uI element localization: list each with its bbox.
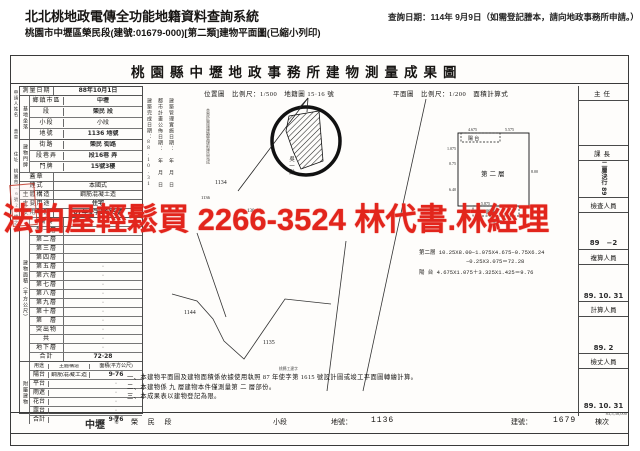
area-calc-line-2: −0.25X3.075＝72.28 [466,257,524,265]
boundary-line [363,99,426,391]
north-arrow-head [307,98,308,112]
attached-label: 露台 [30,408,49,414]
official-title: 計算人員 [579,302,628,317]
footer-section: 榮 民 段 [131,417,176,427]
floor-area-group: 建物面積（平方公尺） 騎樓· 第一層 第二層 第三層 第四層 第五層· 第六層·… [20,217,142,361]
floor-label: 第五層 [30,263,64,271]
system-title: 北北桃地政電傳全功能地籍資料查詢系統 [25,6,259,25]
floor-label: 突出物 [30,326,64,334]
document-subtitle: 桃園市中壢區榮民段(建號:01679-000)[第二類]建物平面圖(已縮小列印) [25,25,321,39]
note-line-2: 二、本建物係 九 層建物本件僅測量第 二 層部份。 [127,382,276,391]
footer-building-number: 1679 [553,416,576,425]
floor-label: 第三層 [30,245,64,253]
floor-label: 第四層 [30,254,64,262]
boundary-line [197,233,226,317]
official-title: 複算人員 [579,250,628,265]
dim-top-left: 4.675 [468,127,477,132]
floor-value: · [64,308,142,316]
row-value: 段16巷 弄 [64,152,142,160]
table-row: 段榮民 段 [30,106,142,117]
parcel-label-1144: 1144 [184,310,196,316]
row-label: 鄉鎮市區 [30,97,64,105]
dim-top-right: 5.575 [505,127,514,132]
row-label: 小段 [30,119,64,127]
official-title: 課長 [579,146,628,161]
attached-row: 露台· [30,406,142,415]
table-row: 段巷弄段16巷 弄 [30,150,142,161]
attached-row: 平台· [30,379,142,388]
survey-date-row: 測量日期 88年10月1日 [20,87,142,95]
table-row: 門牌15號3樓 [30,161,142,172]
area-calc-line-3: 陽 台 4.675X1.075＋3.325X1.425＝9.76 [419,268,533,276]
floor-label: 第六層 [30,272,64,280]
query-date: 查詢日期：114年 9月9日（如需登記謄本，請向地政事務所申請。） [388,11,639,23]
attached-label: 合計 [30,417,49,423]
official-note: 89. 10. 31 [579,369,628,411]
floor-row: 第七層· [30,280,142,289]
row-value: 15號3樓 [64,163,142,171]
floor-row: 第六層· [30,271,142,280]
building-info-table: 測量日期 88年10月1日 基地坐落 鄉鎮市區中壢 段榮民 段 小段小段 地號1… [19,86,143,414]
floor-label: 地下層 [30,344,64,352]
attached-group-label: 附屬建物 [20,362,30,424]
attached-row: 花台· [30,397,142,406]
attached-header-row: 用途 主體構造 面積(平方公尺) [30,362,142,370]
officials-column: 主任 課長 二層決行 89 檢查人員 89 −2 複算人員 89. 10. 31… [578,86,628,416]
floor-row: 第九層· [30,298,142,307]
row-label: 地號 [30,130,64,138]
footer-parcel-number: 1136 [371,416,394,425]
attached-structure: 鋼筋混凝土造 [49,372,90,378]
floor-value: · [64,281,142,289]
floor-label: 第九層 [30,299,64,307]
row-value: 榮民 街路 [64,141,142,149]
floor-row: 第 層· [30,316,142,325]
official-section-calculator: 計算人員 89. 2 [579,302,628,354]
footer-bottom-rule [11,433,628,434]
floor-value [64,239,142,241]
floor-total-row: 合計72·28 [30,352,142,361]
official-title: 主任 [579,86,628,101]
attached-area-header: 面積(平方公尺) [90,364,142,369]
attached-label: 平台 [30,381,49,387]
seal-label: 蓋章 [20,173,54,181]
survey-document: 桃園縣中壢地政事務所建物測量成果圖 申請人姓名 蓋章 住址 桃園市…6號20樓之… [10,55,629,446]
site-group-label: 基地坐落 [20,96,30,139]
row-value: 本國式 [54,182,142,190]
balcony-top-outline [461,133,500,142]
attached-row: 雨遮· [30,388,142,397]
footer-unit-label: 棟次 [595,417,609,427]
floor-value: · [64,335,142,343]
site-group: 基地坐落 鄉鎮市區中壢 段榮民 段 小段小段 地號1136 地號 [20,95,142,139]
table-row: 地號1136 地號 [30,128,142,139]
floor-row: 地下層· [30,343,142,352]
floor-value: · [64,317,142,325]
document-title: 桃園縣中壢地政事務所建物測量成果圖 [131,61,463,81]
area-calc-line-1: 第二層 10.25X8.00−1.075X4.675−0.75X6.24 [419,248,544,256]
official-note: 89. 2 [579,317,628,353]
official-section-head: 課長 二層決行 89 [579,146,628,198]
footer-town-label: 鄉市 [114,415,119,429]
attached-area: · [90,408,142,414]
attached-group: 附屬建物 用途 主體構造 面積(平方公尺) 陽台鋼筋混凝土造9·76 平台· 雨… [20,361,142,424]
boundary-line [172,294,331,359]
official-section-surveyor: 檢丈人員 89. 10. 31 [579,354,628,411]
survey-date-value: 88年10月1日 [54,87,142,95]
floor-value: · [64,326,142,334]
table-row: 鄉鎮市區中壢 [30,96,142,106]
floor-row: 第八層· [30,289,142,298]
dim-left-1: 1.075 [447,146,456,151]
row-label: 段 [30,108,64,116]
seal-row: 蓋章 [20,172,142,181]
table-row: 小段小段 [30,117,142,128]
official-note [579,101,628,145]
title-rule [11,83,628,84]
floor-label: 共 [30,335,64,343]
footer-parcel-label: 地號： [331,417,352,427]
attached-label: 雨遮 [30,390,49,396]
footer-town: 中壢 [85,416,105,431]
row-value: 1136 地號 [64,130,142,138]
official-section-checker: 複算人員 89. 10. 31 [579,250,628,302]
floor-row: 第三層 [30,244,142,253]
floor-value: · [64,299,142,307]
row-value: 中壢 [64,97,142,105]
floor-value: · [64,272,142,280]
official-section-chief: 主任 [579,86,628,146]
floor-row: 突出物· [30,325,142,334]
floor-label: 第二層 [30,236,64,244]
official-title: 檢丈人員 [579,354,628,369]
dim-left-2: 0.75 [449,161,456,166]
floor-total-value: 72·28 [64,353,142,361]
floor-label: 第 層 [30,317,64,325]
footer-subsection: 小段 [273,417,287,427]
floor-row: 第四層 [30,253,142,262]
floor-row: 第五層· [30,262,142,271]
parcel-label-1134: 1134 [215,180,227,186]
survey-date-label: 測量日期 [20,87,54,95]
note-line-3: 三、本成果表以建物登記為限。 [127,391,221,400]
floor-area-group-label: 建物面積（平方公尺） [20,218,30,361]
address-group: 建物門牌 街路榮民 街路 段巷弄段16巷 弄 門牌15號3樓 [20,139,142,172]
table-row: 建式本國式 [20,181,142,190]
row-value: 榮民 段 [64,108,142,116]
floor-label: 第十層 [30,308,64,316]
parcel-label-1135: 1135 [263,340,275,346]
floor-row: 第十層· [30,307,142,316]
advert-watermark: 法拍屋輕鬆買 2266-3524 林代書.林經理 [0,194,640,236]
balcony-top-label: 陽 台 [468,135,479,142]
row-label: 街路 [30,141,64,149]
dim-right: 8.00 [531,169,538,174]
table-row: 街路榮民 街路 [30,140,142,150]
seal-area [54,176,142,178]
official-note: 89. 10. 31 [579,265,628,301]
room-label: 第二層 [481,169,507,178]
floor-value: · [64,263,142,271]
address-group-label: 建物門牌 [20,140,30,172]
official-note: 二層決行 89 [579,161,628,197]
boundary-line [327,241,346,391]
row-value: 小段 [64,119,142,127]
attached-label: 陽台 [30,372,49,378]
attached-structure-header: 主體構造 [49,364,90,369]
floor-value [64,257,142,259]
floor-value: · [64,344,142,352]
attached-use-header: 用途 [30,364,49,369]
note-line-1: 一、本建物平面圖及建物面積係依據使用執照 87 年使字第 1615 號設計圖或竣… [127,372,417,381]
attached-label: 花台 [30,399,49,405]
floor-label: 第七層 [30,281,64,289]
floor-value [64,248,142,250]
dim-left-3: 6.40 [449,187,456,192]
row-label: 門牌 [30,163,64,171]
row-label: 段巷弄 [30,152,64,160]
footer-rule [11,412,628,413]
applicant-side-strip: 申請人姓名 蓋章 住址 桃園市…6號20樓之1 [11,86,19,416]
floor-value: · [64,290,142,298]
floor-label: 第八層 [30,290,64,298]
floor-label: 合計 [30,353,64,361]
floor-row: 共· [30,334,142,343]
attached-row: 陽台鋼筋混凝土造9·76 [30,370,142,379]
footer-building-label: 建號： [511,417,532,427]
